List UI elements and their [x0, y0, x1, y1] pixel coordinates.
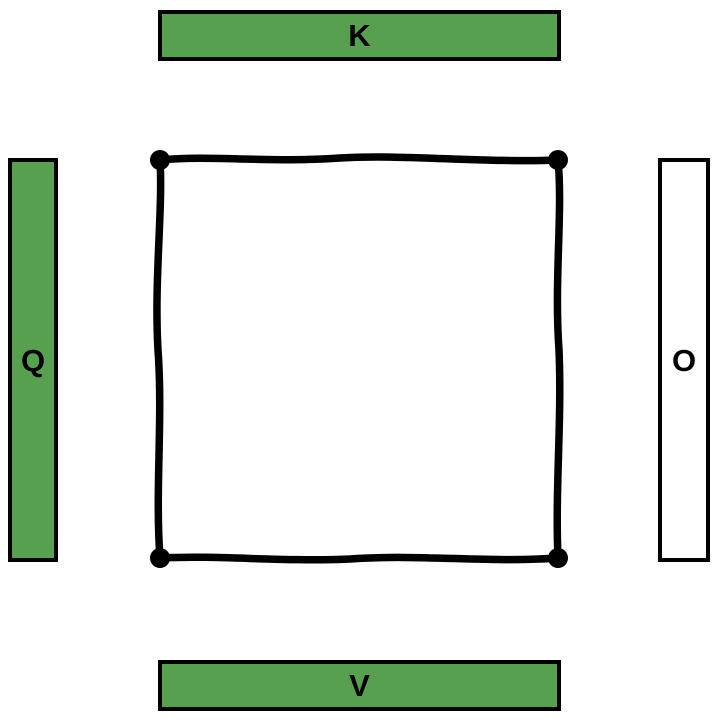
piece-label-top: K	[348, 20, 370, 51]
piece-label-left: Q	[21, 345, 45, 376]
piece-bar-right[interactable]: O	[658, 158, 710, 562]
piece-label-bottom: V	[349, 670, 370, 701]
corner-dot-bottom-left	[150, 548, 170, 568]
piece-bar-top[interactable]: K	[158, 10, 561, 61]
hand-drawn-square-outline	[140, 140, 580, 580]
corner-dot-top-right	[548, 150, 568, 170]
piece-label-right: O	[672, 345, 696, 376]
square-outline-path	[157, 157, 560, 560]
corner-dot-top-left	[150, 150, 170, 170]
piece-bar-bottom[interactable]: V	[158, 660, 561, 711]
puzzle-canvas: K Q O V	[0, 0, 720, 720]
corner-dot-bottom-right	[548, 548, 568, 568]
drop-zone-square[interactable]	[140, 140, 580, 580]
piece-bar-left[interactable]: Q	[8, 158, 58, 562]
